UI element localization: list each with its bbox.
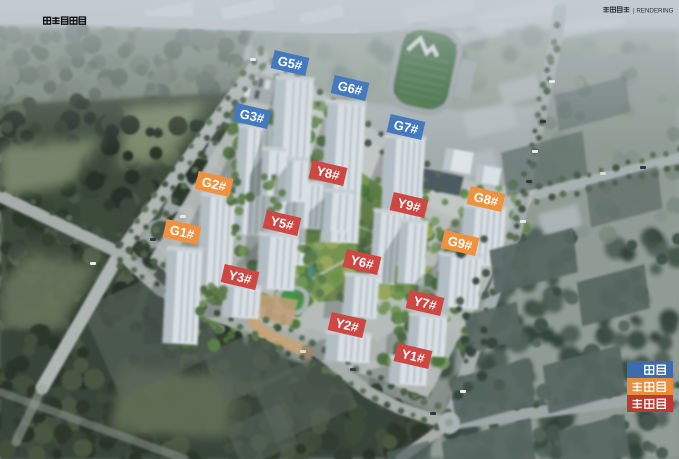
svg-text:| RENDERING: | RENDERING	[633, 7, 674, 14]
